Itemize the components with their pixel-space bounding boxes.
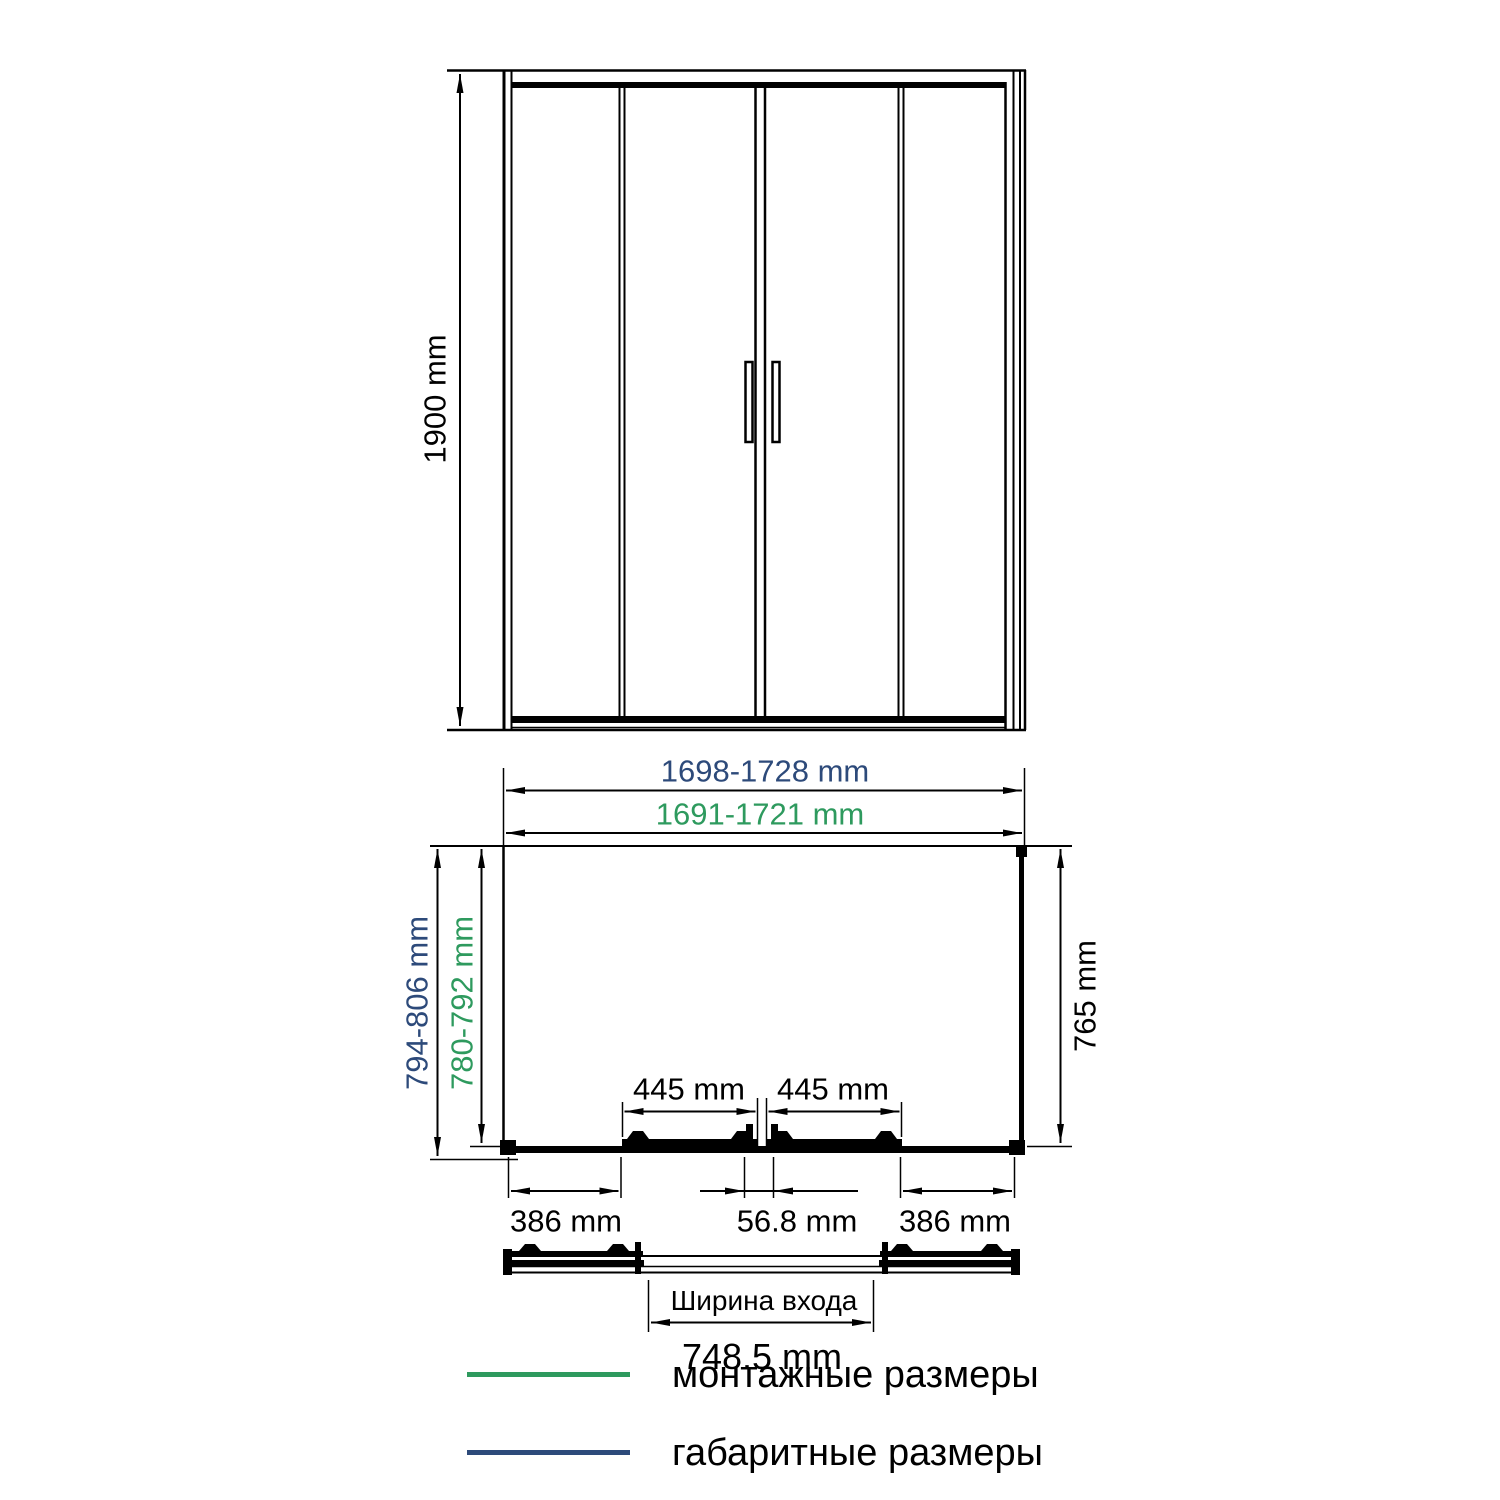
roller-icon [519,1244,541,1251]
panel-left-label: 386 mm [510,1206,622,1237]
legend-line-overall [467,1450,630,1455]
plan-view-drawing [430,768,1072,1198]
front-height-label: 1900 mm [420,334,451,463]
install-depth-label: 780-792 mm [447,916,478,1090]
entrance-width-title: Ширина входа [671,1287,858,1315]
install-width-label: 1691-1721 mm [656,799,865,830]
overall-width-label: 1698-1728 mm [661,756,870,787]
legend-lines [467,1372,630,1455]
roller-icon [875,1131,897,1139]
roller-icon [981,1244,1003,1251]
roller-icon [607,1244,629,1251]
legend-install-label: монтажные размеры [672,1356,1039,1394]
side-depth-label: 765 mm [1070,940,1101,1052]
legend-line-install [467,1372,630,1377]
overall-depth-label: 794-806 mm [402,916,433,1090]
technical-drawing [0,0,1500,1500]
door-right-label: 445 mm [777,1074,889,1105]
panel-right-label: 386 mm [899,1206,1011,1237]
front-elevation-drawing [447,70,1026,730]
legend-overall-label: габаритные размеры [672,1434,1043,1472]
diagram-canvas: 1900 mm 1698-1728 mm 1691-1721 mm 794-80… [0,0,1500,1500]
roller-icon [627,1131,649,1139]
door-handle-right [773,362,780,442]
door-left-label: 445 mm [633,1074,745,1105]
door-handle-left [746,362,753,442]
center-overlap-label: 56.8 mm [737,1206,858,1237]
roller-icon [891,1244,913,1251]
